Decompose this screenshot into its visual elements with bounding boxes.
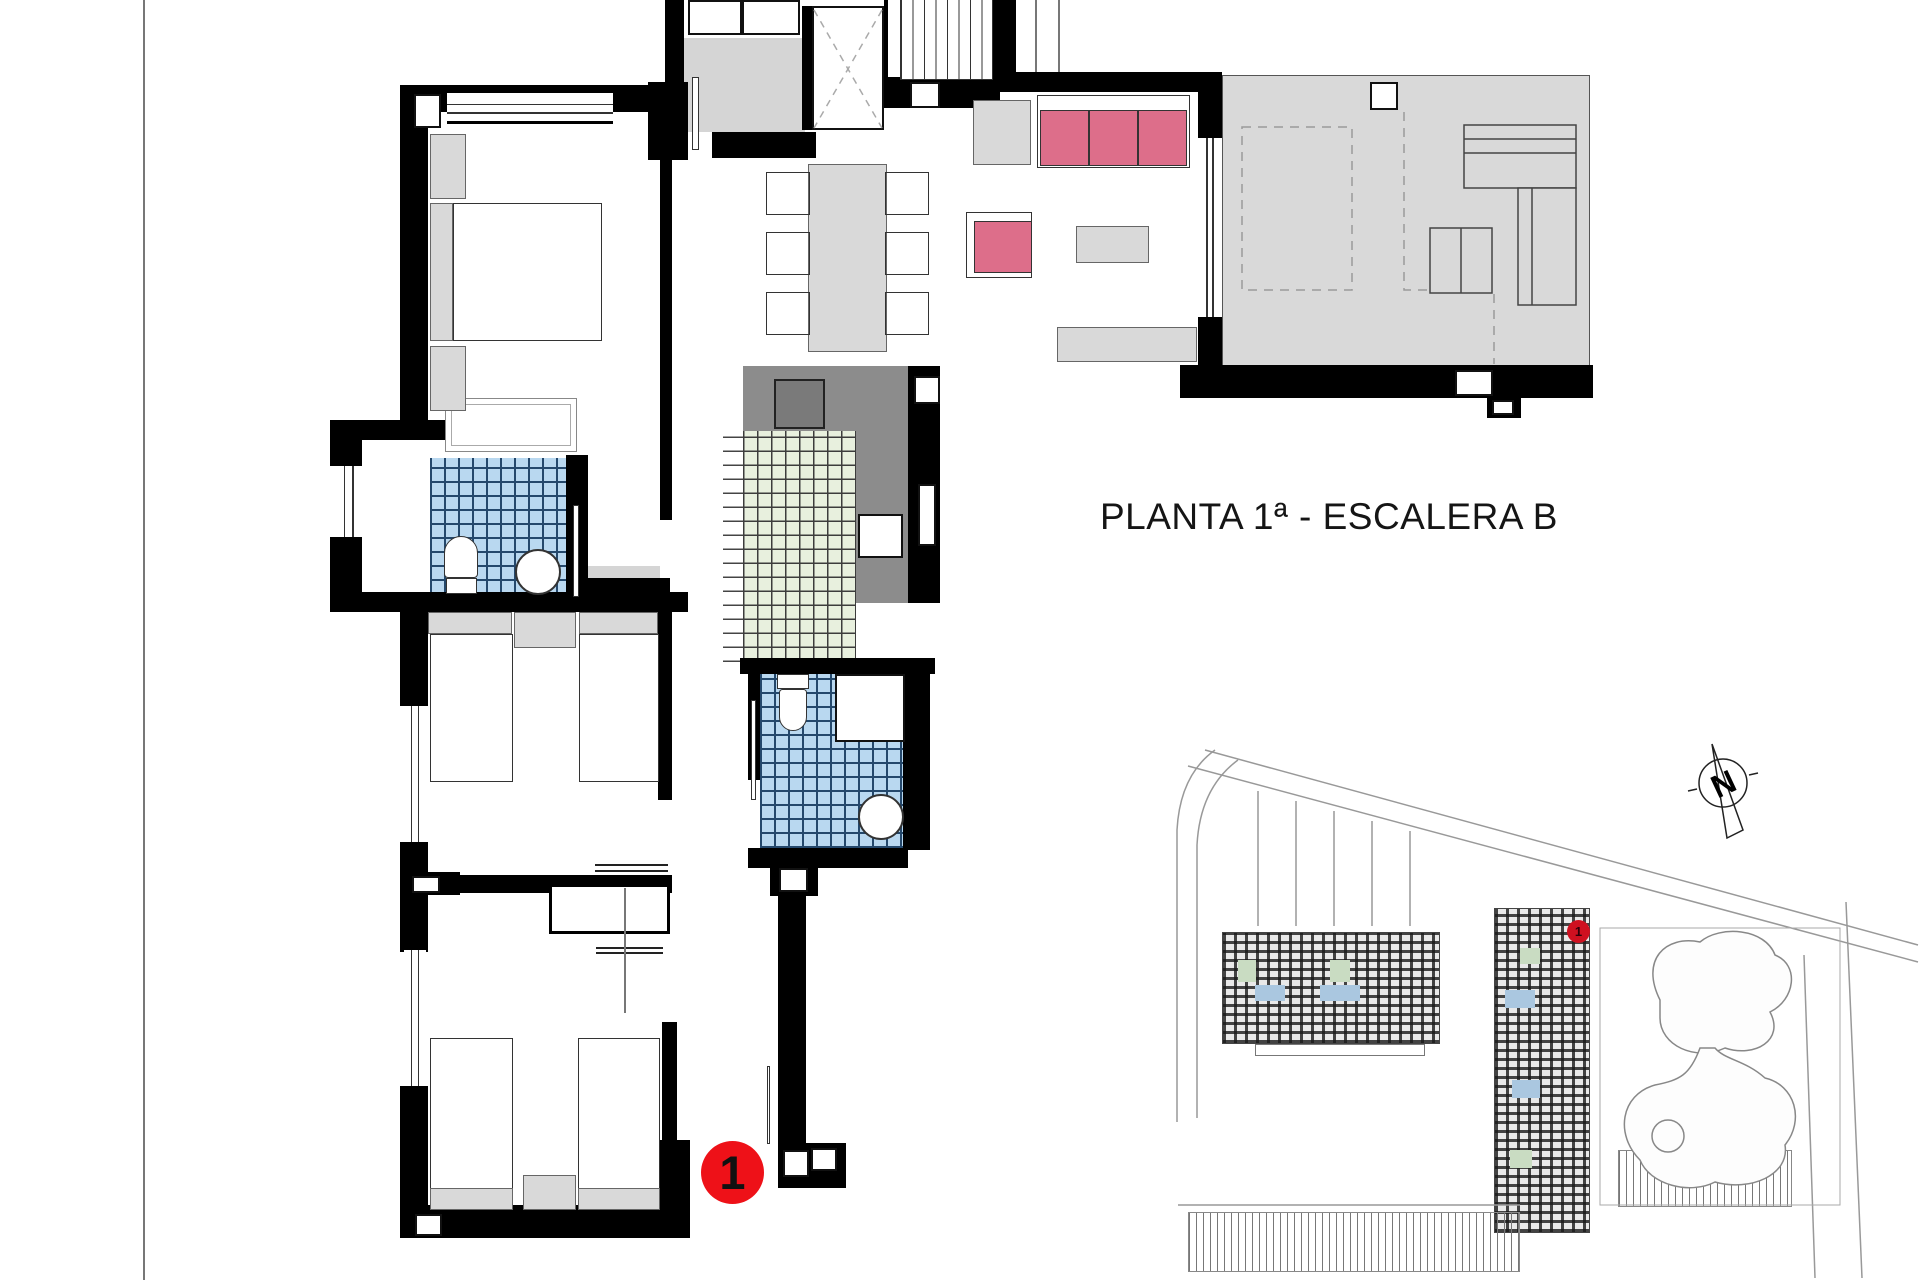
site-patch [1520,948,1540,964]
kitchen-appliance [774,379,825,429]
plan-title: PLANTA 1ª - ESCALERA B [1100,496,1558,538]
door-opening [918,484,936,546]
bedroom3-window [404,950,426,1086]
wall-segment [330,592,688,612]
dining-chair [766,172,810,215]
bed-pillow [428,612,512,634]
wall-niche [811,1148,837,1171]
dining-chair [766,292,810,335]
wall-segment [712,132,816,158]
wall-segment [903,662,930,850]
closet-box [688,0,742,35]
railing [767,1066,770,1144]
single-bed [578,1038,660,1210]
wall-niche [783,1150,809,1177]
site-building [1494,908,1590,1233]
wall-segment [400,612,428,706]
side-table [973,100,1031,165]
wall-segment [993,0,1016,77]
threshold-line [595,870,668,872]
bed-pillow [578,1188,660,1210]
door-leaf [751,700,756,800]
door-opening [914,376,940,404]
wall-segment [660,160,672,520]
toilet [444,536,478,578]
nightstand [523,1175,576,1210]
sofa-cushion [1040,110,1089,166]
wall-segment [662,1022,677,1142]
window-box [414,94,441,128]
closet-rod-line [596,947,663,949]
single-bed [579,634,659,782]
coffee-table [1076,226,1149,263]
sideboard [1057,327,1197,362]
wall-segment [400,85,428,425]
bedroom2-window [404,706,426,842]
stair-landing [684,38,805,132]
kitchen-door [858,514,903,558]
dining-chair [885,232,929,275]
wall-niche [779,868,808,892]
terrace-sliding-door [1200,138,1220,317]
dining-table [808,164,887,352]
site-patch [1320,985,1360,1001]
wall-niche [1370,82,1398,110]
sheet-border-line [143,0,145,1280]
site-unit-dot[interactable]: 1 [1567,920,1590,943]
closet-rod-line [596,952,663,954]
staircase [900,0,993,80]
wall-segment [778,878,806,1143]
wall-line [1035,0,1037,72]
toilet [779,689,807,731]
site-balcony-row [1255,1044,1425,1056]
wall-niche [1492,400,1514,415]
bedroom1-window [447,90,613,124]
door-opening [910,82,940,108]
nightstand [514,612,576,648]
armchair-cushion [974,221,1032,273]
wall-segment [1180,365,1593,398]
wall-segment [330,420,362,466]
wall-segment [658,612,672,800]
wall-line [1058,0,1060,72]
shelf [588,566,660,578]
washbasin [515,549,561,595]
wall-segment [400,895,428,952]
single-bed [430,634,513,782]
bed-pillow [430,1188,513,1210]
wall-segment [660,1140,690,1238]
wall-segment [1198,92,1222,138]
floor-plan-sheet: PLANTA 1ª - ESCALERA B 1 1 [0,0,1920,1280]
nightstand [430,346,466,411]
shower [835,674,905,742]
threshold-line [595,864,668,866]
terrace-floor [1222,75,1590,372]
wall-line [624,888,626,1013]
wall-segment [665,0,684,82]
single-bed [430,1038,513,1210]
nightstand [430,134,466,199]
bathroom1-window [336,466,362,537]
elevator-shaft [812,6,884,130]
site-patch [1505,990,1535,1008]
dining-chair [885,172,929,215]
toilet-base [446,578,477,594]
double-bed [453,203,602,341]
door-leaf [573,505,579,597]
site-patch [1512,1080,1540,1098]
sofa-cushion [1138,110,1187,166]
sofa-cushion [1089,110,1138,166]
site-patch [1238,960,1256,982]
dining-chair [885,292,929,335]
kitchen-floor-tiles [743,431,856,662]
plan-overlay-graphics: N [0,0,1920,1280]
unit-number-marker[interactable]: 1 [701,1141,764,1204]
kitchen-counter [743,366,908,431]
door-opening [1455,370,1493,396]
door-opening [412,876,440,893]
washbasin [858,794,904,840]
closet-box [742,0,800,35]
toilet-tank [777,674,809,689]
site-patch [1330,960,1350,982]
wall-niche [415,1214,442,1236]
site-patch [1510,1150,1532,1168]
north-compass-icon: N [1688,744,1758,838]
compass-north-letter: N [1705,763,1741,805]
bed-headboard [430,203,453,341]
unit-number-label: 1 [719,1145,745,1200]
wardrobe [549,884,670,934]
site-hatch-strip [1188,1212,1520,1272]
site-patch [1255,985,1285,1001]
dining-chair [766,232,810,275]
kitchen-floor-ticks [723,431,743,662]
bed-pillow [579,612,658,634]
site-unit-dot-label: 1 [1575,924,1582,939]
site-hatch-strip [1618,1150,1792,1207]
door-leaf [692,77,699,150]
